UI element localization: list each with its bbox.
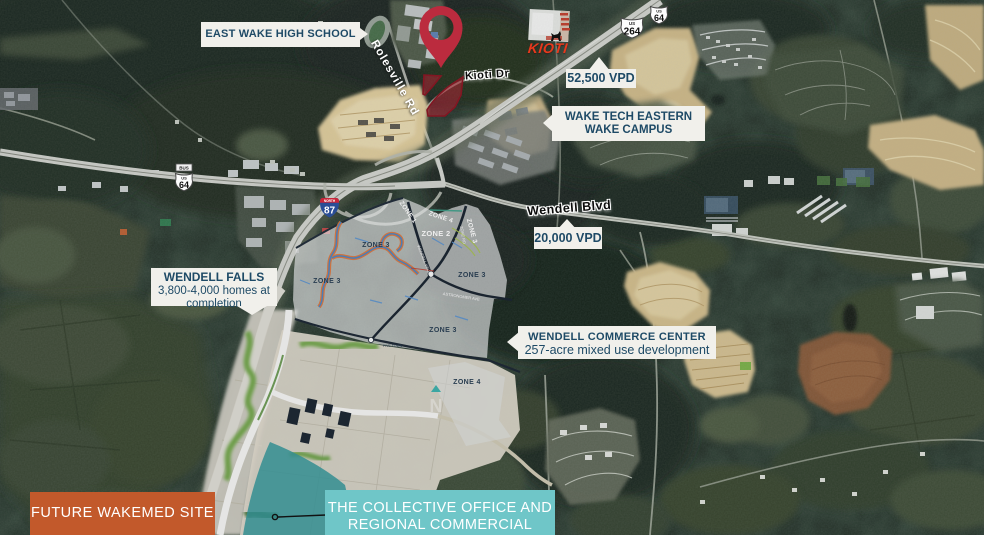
svg-text:64: 64 [654,13,664,23]
svg-text:FIVE TOWN: FIVE TOWN [383,344,403,348]
svg-text:ZONE 3: ZONE 3 [429,327,457,334]
svg-text:ZONE 3: ZONE 3 [458,272,486,279]
svg-text:N: N [430,396,443,416]
svg-text:ZONE 3: ZONE 3 [313,278,341,285]
svg-text:ZONE 3: ZONE 3 [362,242,390,249]
svg-text:64: 64 [179,180,189,190]
svg-text:ZONE 4: ZONE 4 [453,379,481,386]
svg-text:US: US [629,21,635,26]
svg-text:87: 87 [324,206,336,217]
svg-text:NORTH: NORTH [324,199,336,203]
svg-text:264: 264 [624,27,641,38]
svg-text:BUS: BUS [179,166,189,171]
svg-text:ZONE 2: ZONE 2 [422,229,451,238]
